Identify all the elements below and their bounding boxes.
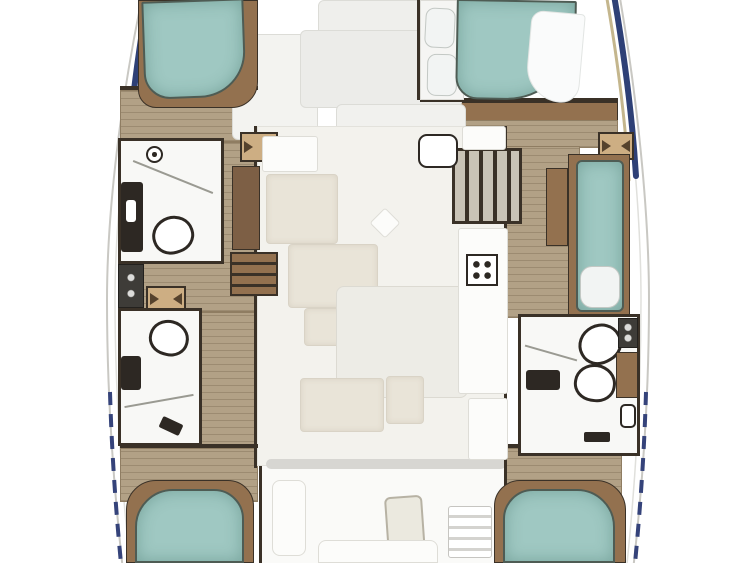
- salon-cushion-1: [300, 378, 384, 432]
- galley-stove: [466, 254, 498, 286]
- salon-shelf-fwd: [262, 136, 318, 172]
- salon-cushion-2: [386, 376, 424, 424]
- stbd-cabinet: [546, 168, 568, 246]
- stbd-bath-counter: [526, 370, 560, 390]
- stbd-bath-sink: [620, 404, 636, 428]
- salon-sofa-1: [266, 174, 338, 244]
- port-fwd-bed: [141, 0, 246, 100]
- port-aft-sink: [121, 356, 141, 390]
- galley-counter: [458, 228, 508, 394]
- plan-elements: [0, 0, 751, 563]
- salon-cabinet: [232, 166, 260, 250]
- stbd-shower-drain: [584, 432, 610, 442]
- stbd-fwd-pillow-1: [424, 7, 456, 49]
- stbd-aft-bed: [503, 489, 615, 563]
- cockpit-bench-aft: [318, 540, 438, 563]
- port-utility-stack: [118, 264, 144, 308]
- salon-door-track: [266, 459, 506, 469]
- port-fwd-shower-drain: [146, 146, 163, 163]
- cockpit-bench-port: [272, 480, 306, 556]
- port-floor-side-aft: [198, 312, 258, 450]
- catamaran-floorplan: [0, 0, 751, 563]
- galley-sink: [418, 134, 458, 168]
- stbd-bath-cabinet: [616, 352, 638, 398]
- cockpit-port-wall: [259, 466, 262, 563]
- stbd-bath-tech: [618, 318, 638, 348]
- port-fwd-sink: [124, 198, 138, 224]
- stbd-steps: [452, 148, 522, 224]
- port-steps: [230, 252, 278, 296]
- transom-steps: [448, 506, 492, 558]
- stbd-fwd-pillow-2: [427, 54, 458, 97]
- galley-cabinet-fwd: [462, 126, 506, 150]
- galley-fridge: [468, 398, 508, 460]
- stbd-berth-pillow: [580, 266, 620, 308]
- port-aft-bed: [135, 489, 244, 563]
